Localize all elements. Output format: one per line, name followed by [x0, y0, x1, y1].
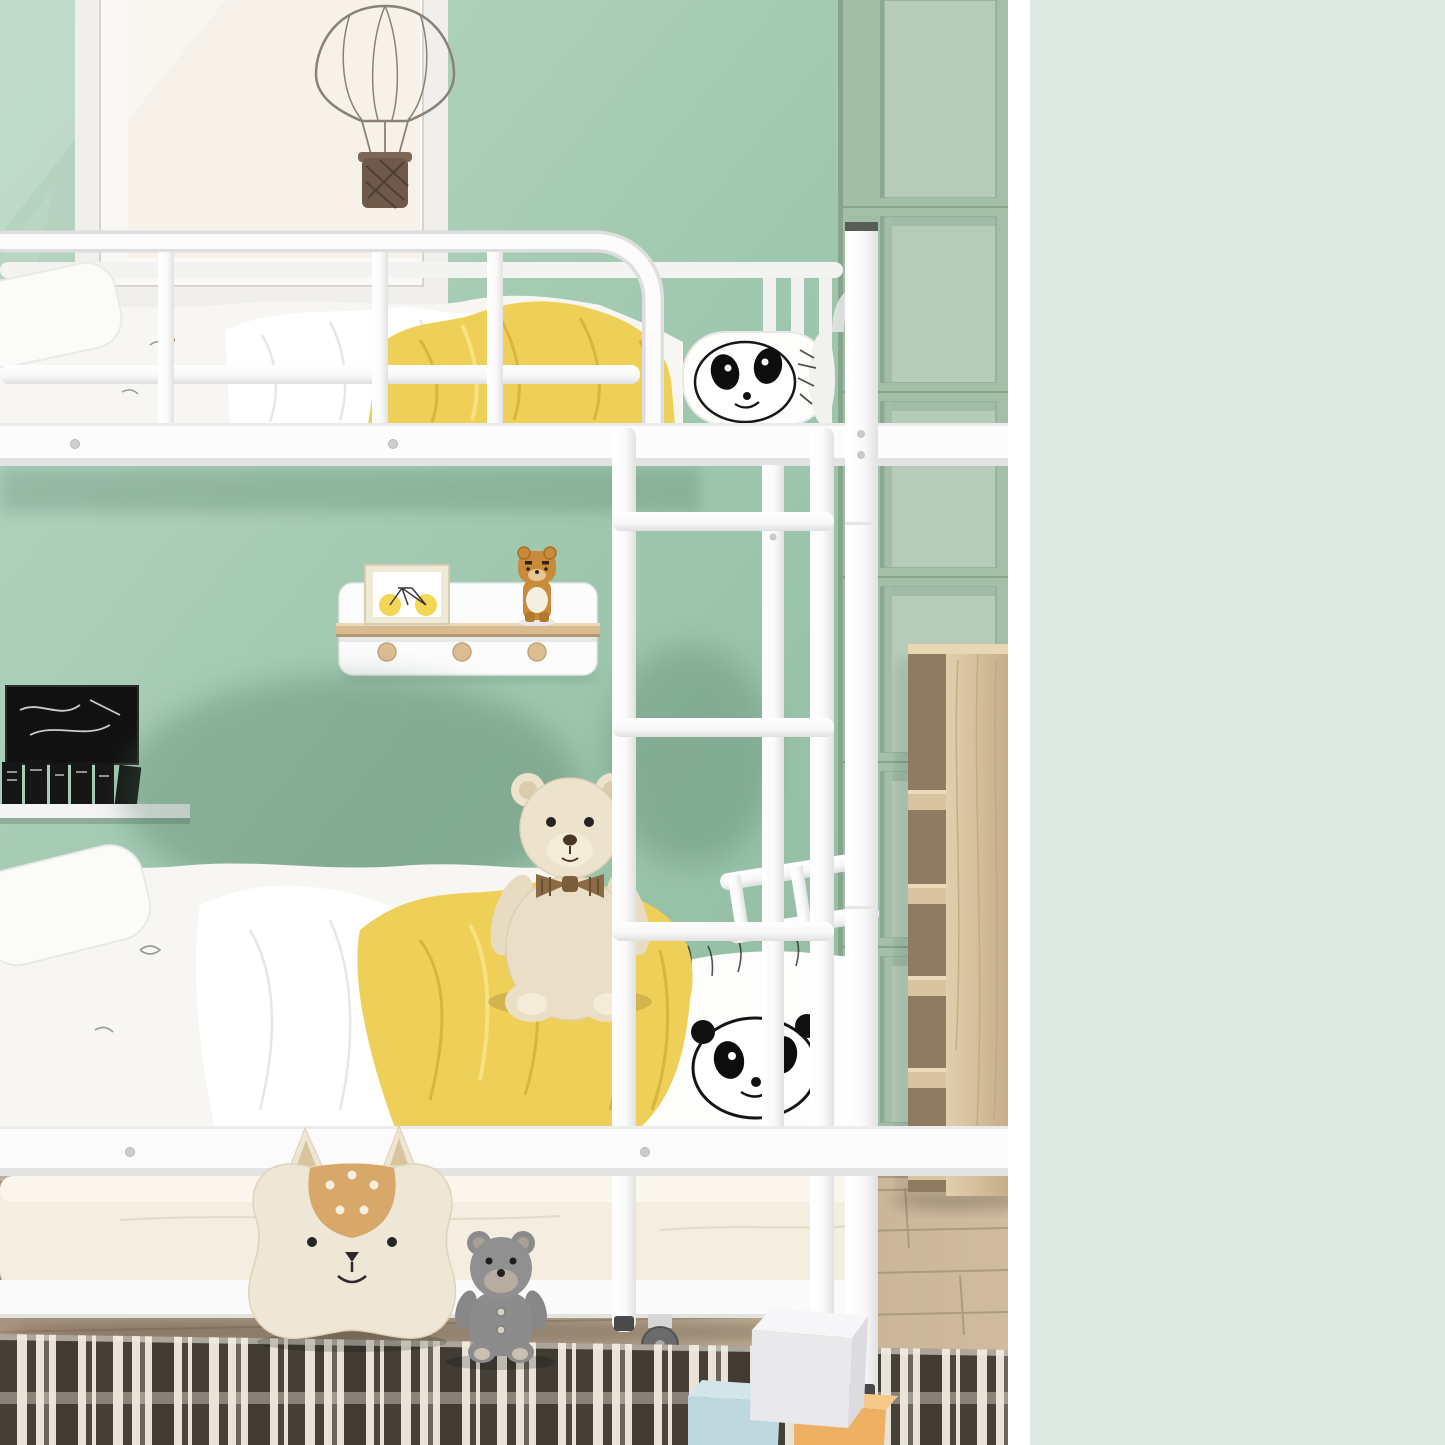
lower-bunk-bedding: [0, 838, 880, 1130]
ladder-rung: [612, 922, 834, 941]
wooden-shelf-unit: [892, 644, 1008, 1210]
bike-picture: [365, 565, 449, 624]
product-listing-image: Safe and Non-Slip Ladder: [0, 0, 1445, 1445]
product-photo: [0, 0, 1008, 1445]
ladder-rung: [612, 512, 834, 531]
support-post: [762, 465, 784, 1128]
ladder-rung: [612, 718, 834, 737]
corner-post: [845, 222, 878, 1402]
room-scene: [0, 0, 1008, 1445]
panda-pillow-roll: [683, 332, 835, 425]
lion-figurine: [518, 547, 556, 626]
features-panel: Safe and Non-Slip Ladder: [1030, 0, 1445, 1445]
lower-platform: [0, 1126, 1008, 1176]
